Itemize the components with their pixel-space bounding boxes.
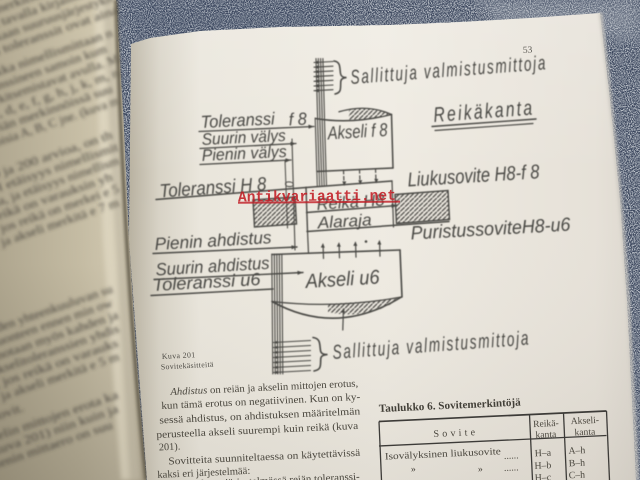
svg-text:B–h: B–h bbox=[568, 458, 585, 470]
svg-text:kanta: kanta bbox=[535, 429, 557, 441]
svg-text:......: ...... bbox=[504, 474, 519, 480]
svg-text:H–b: H–b bbox=[534, 460, 551, 472]
svg-text:Alaraja: Alaraja bbox=[316, 211, 372, 232]
svg-text:Sovite: Sovite bbox=[433, 427, 478, 440]
svg-text:Akseli u6: Akseli u6 bbox=[304, 266, 381, 293]
svg-text:53: 53 bbox=[523, 45, 533, 55]
svg-text:»: » bbox=[478, 464, 483, 475]
svg-text:Akseli-: Akseli- bbox=[571, 415, 600, 427]
svg-text:......: ...... bbox=[504, 450, 519, 462]
svg-text:»: » bbox=[411, 464, 416, 475]
svg-text:......: ...... bbox=[504, 462, 519, 474]
svg-text:H–c: H–c bbox=[534, 472, 551, 480]
svg-text:H–a: H–a bbox=[534, 448, 551, 460]
svg-text:A–h: A–h bbox=[568, 445, 585, 457]
svg-text:Antikvariaatti.net: Antikvariaatti.net bbox=[238, 188, 396, 207]
svg-text:kanta: kanta bbox=[574, 427, 596, 439]
svg-text:Akseli f 8: Akseli f 8 bbox=[326, 119, 389, 144]
svg-text:Kuva 201: Kuva 201 bbox=[162, 350, 196, 361]
svg-text:201).: 201). bbox=[159, 442, 181, 454]
svg-text:C–h: C–h bbox=[568, 470, 585, 480]
